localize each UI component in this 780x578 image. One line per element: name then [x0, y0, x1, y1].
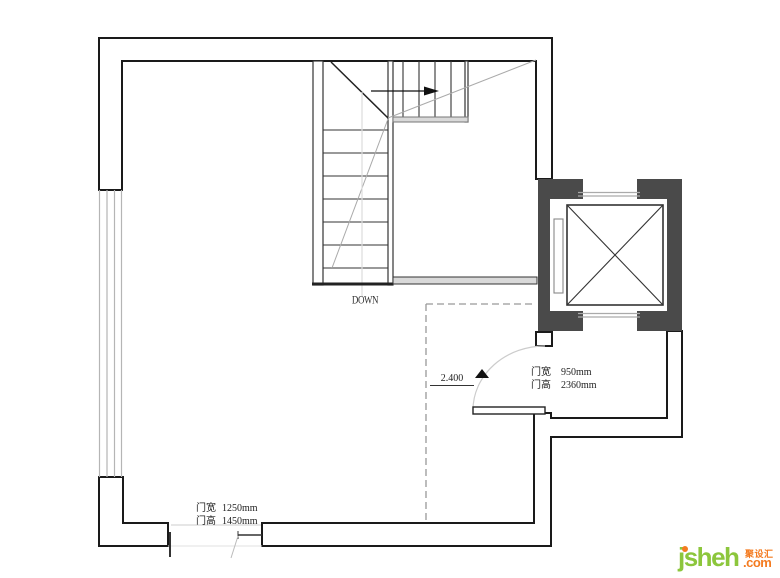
- stair-down-label: DOWN: [347, 294, 383, 307]
- door-right-annotation: 门宽 950mm 门高 2360mm: [531, 366, 597, 392]
- watermark-logo: jsheh 聚设汇 .com: [678, 542, 778, 576]
- door-width-label: 门宽: [196, 502, 222, 515]
- door-width-value: 950mm: [561, 366, 592, 379]
- logo-tld-text: .com: [743, 555, 771, 570]
- stair-cut-line: [331, 62, 388, 118]
- stair-mid-wall: [388, 61, 393, 285]
- elevator-counterweight: [554, 219, 563, 293]
- floor-plan-drawing: [0, 0, 780, 578]
- staircase: [312, 60, 537, 296]
- door-bottom-opening: [168, 525, 262, 558]
- door-frame-stub: [536, 332, 552, 346]
- door-bottom-annotation: 门宽 1250mm 门高 1450mm: [196, 502, 258, 528]
- level-marker-icon: [475, 369, 489, 378]
- wall-bottom-left: [99, 477, 168, 546]
- stair-left-wall: [313, 61, 323, 285]
- wall-top-left-right: [99, 38, 552, 190]
- door-height-value: 1450mm: [222, 515, 258, 528]
- stair-landing-edge: [393, 117, 468, 122]
- window-left: [100, 190, 122, 477]
- wall-bottom-right: [262, 331, 682, 546]
- stair-break-line-a: [388, 60, 536, 118]
- stair-right-edge: [465, 61, 468, 122]
- logo-dot-icon: [682, 546, 688, 552]
- door-width-label: 门宽: [531, 366, 561, 379]
- elevator-cab-icon: [567, 205, 663, 305]
- door-height-label: 门高: [196, 515, 222, 528]
- elevator-shaft: [538, 179, 682, 331]
- stair-treads-lower: [323, 130, 388, 268]
- stair-break-line-b: [332, 119, 388, 268]
- door-height-label: 门高: [531, 379, 561, 392]
- stair-direction-arrow: [371, 87, 439, 96]
- door-width-value: 1250mm: [222, 502, 258, 515]
- floor-plan-canvas: DOWN 2.400 门宽 950mm 门高 2360mm 门宽 1250mm …: [0, 0, 780, 578]
- door-height-value: 2360mm: [561, 379, 597, 392]
- level-marker-label: 2.400: [430, 372, 474, 386]
- landing-parapet: [393, 277, 537, 284]
- door-leaf: [473, 407, 545, 414]
